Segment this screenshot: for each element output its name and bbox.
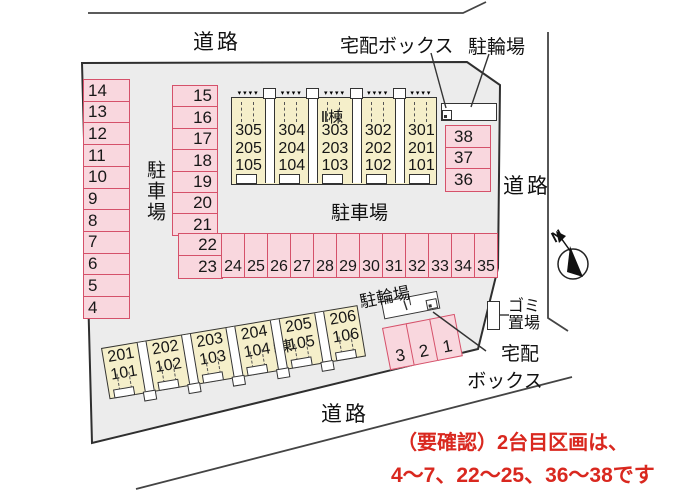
parking-space-38: 38 xyxy=(445,125,491,148)
parking-space-6: 6 xyxy=(83,253,130,276)
parking-space-18: 18 xyxy=(172,149,218,172)
parking-space-29: 29 xyxy=(337,234,360,277)
road-line-right xyxy=(548,32,568,331)
direction-markers: ▾▾▾▾ xyxy=(405,90,438,97)
parking-space-8: 8 xyxy=(83,209,130,232)
balcony-divider xyxy=(426,102,427,122)
parking-space-37: 37 xyxy=(445,147,491,170)
parking-space-13: 13 xyxy=(83,101,130,124)
unit-number: 102 xyxy=(360,157,397,175)
parking-space-22: 22 xyxy=(178,233,223,257)
building-unit: 301201101 xyxy=(403,122,440,175)
unit-number: 103 xyxy=(316,157,353,175)
parking-space-25: 25 xyxy=(245,234,268,277)
bicycle-parking-label-top: 駐輪場 xyxy=(468,32,525,59)
delivery-box-label-top: 宅配ボックス xyxy=(340,31,453,58)
site-plan: 1413121110987654151617181920212223383736… xyxy=(0,0,685,498)
direction-markers: ▾▾▾▾ xyxy=(275,90,308,97)
parking-space-26: 26 xyxy=(268,234,291,277)
parking-lot-label-center: 駐車場 xyxy=(331,198,388,225)
balcony-divider xyxy=(253,102,254,122)
entrance-porch xyxy=(322,174,343,184)
road-label-bottom: 道路 xyxy=(321,398,369,428)
unit-number: 205 xyxy=(230,140,267,158)
delivery-box-dot xyxy=(428,304,432,308)
stairwell-tab xyxy=(232,375,246,387)
parking-space-12: 12 xyxy=(83,122,130,145)
stairwell-tab xyxy=(187,382,201,394)
balcony-divider xyxy=(284,102,285,122)
parking-space-36: 36 xyxy=(445,168,491,191)
parking-space-35: 35 xyxy=(475,234,497,277)
parking-space-30: 30 xyxy=(360,234,383,277)
balcony-divider xyxy=(296,102,297,122)
parking-space-27: 27 xyxy=(291,234,314,277)
garbage-label-line1: ゴミ xyxy=(508,298,540,315)
parking-space-15: 15 xyxy=(172,85,218,108)
delivery-box-label-line1: 宅配 xyxy=(487,339,553,366)
note-line-1: （要確認）2台目区画は、 xyxy=(397,426,628,455)
parking-space-17: 17 xyxy=(172,128,218,151)
building-unit: 304204104 xyxy=(273,122,310,175)
balcony-divider xyxy=(327,102,328,122)
delivery-box-label-bottom: 宅配 ボックス xyxy=(487,339,553,393)
parking-space-34: 34 xyxy=(452,234,475,277)
parking-space-24: 24 xyxy=(222,234,245,277)
garbage-area-box xyxy=(487,301,500,330)
delivery-box-label-line2: ボックス xyxy=(457,366,553,393)
road-label-top: 道路 xyxy=(193,26,241,56)
parking-space-31: 31 xyxy=(383,234,406,277)
unit-number: 104 xyxy=(273,157,310,175)
note-line-2: 4〜7、22〜25、36〜38です xyxy=(391,459,655,489)
stairwell-tab xyxy=(320,360,334,372)
direction-markers: ▾▾▾▾ xyxy=(362,90,395,97)
entrance-porch xyxy=(236,174,257,184)
road-line-top xyxy=(88,2,486,13)
balcony-divider xyxy=(414,102,415,122)
unit-number: 303 xyxy=(316,122,353,140)
balcony-divider xyxy=(383,102,384,122)
parking-space-4: 4 xyxy=(83,296,130,319)
parking-space-20: 20 xyxy=(172,192,218,215)
direction-markers: ▾▾▾▾ xyxy=(232,90,265,97)
parking-space-11: 11 xyxy=(83,144,130,167)
unit-number: 201 xyxy=(403,140,440,158)
unit-number: 105 xyxy=(230,157,267,175)
balcony-divider xyxy=(241,102,242,122)
balcony-divider xyxy=(371,102,372,122)
parking-space-9: 9 xyxy=(83,188,130,211)
entrance-porch xyxy=(366,174,387,184)
delivery-box-top xyxy=(442,110,452,120)
parking-space-5: 5 xyxy=(83,274,130,297)
unit-number: 304 xyxy=(273,122,310,140)
garbage-area-label: ゴミ 置場 xyxy=(508,298,540,332)
parking-row-24-35: 242526272829303132333435 xyxy=(221,233,498,278)
building-2: Ⅱ棟 ▾▾▾▾305205105▾▾▾▾304204104▾▾▾▾3032031… xyxy=(231,97,437,185)
unit-number: 202 xyxy=(360,140,397,158)
unit-number: 301 xyxy=(403,122,440,140)
balcony-divider xyxy=(339,102,340,122)
parking-space-33: 33 xyxy=(429,234,452,277)
parking-space-23: 23 xyxy=(178,255,223,279)
building-unit: 206106 xyxy=(322,307,366,348)
parking-space-16: 16 xyxy=(172,106,218,129)
unit-number: 203 xyxy=(316,140,353,158)
unit-number: 101 xyxy=(403,157,440,175)
direction-markers: ▾▾▾▾ xyxy=(318,90,351,97)
building-unit: 302202102 xyxy=(360,122,397,175)
entrance-porch xyxy=(279,174,300,184)
parking-space-7: 7 xyxy=(83,231,130,254)
parking-space-32: 32 xyxy=(406,234,429,277)
building-unit: 305205105 xyxy=(230,122,267,175)
unit-number: 302 xyxy=(360,122,397,140)
delivery-box-dot xyxy=(444,115,447,118)
stairwell-tab xyxy=(143,390,157,402)
parking-space-19: 19 xyxy=(172,171,218,194)
parking-lot-label-left: 駐車場 xyxy=(141,160,168,223)
garbage-label-line2: 置場 xyxy=(508,315,540,332)
parking-space-28: 28 xyxy=(314,234,337,277)
stairwell-tab xyxy=(276,367,290,379)
building-unit: 303203103 xyxy=(316,122,353,175)
parking-space-10: 10 xyxy=(83,166,130,189)
parking-space-14: 14 xyxy=(83,79,130,102)
unit-number: 204 xyxy=(273,140,310,158)
unit-number: 305 xyxy=(230,122,267,140)
delivery-box-bottom xyxy=(425,298,438,310)
entrance-porch xyxy=(409,174,430,184)
road-label-right: 道路 xyxy=(503,170,551,200)
